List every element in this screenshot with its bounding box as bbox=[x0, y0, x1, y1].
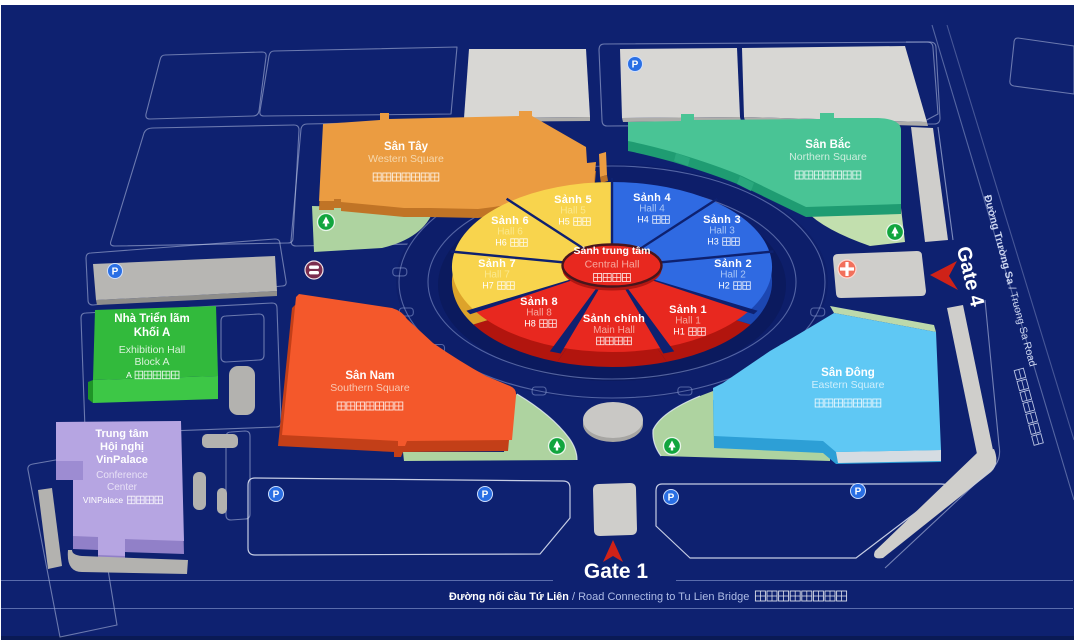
svg-text:VINPalace: VINPalace bbox=[83, 495, 123, 505]
svg-text:Sảnh trung tâm: Sảnh trung tâm bbox=[573, 245, 650, 257]
svg-text:H3: H3 bbox=[707, 237, 719, 247]
svg-text:Eastern Square: Eastern Square bbox=[812, 379, 885, 391]
svg-text:Sảnh 3: Sảnh 3 bbox=[703, 214, 741, 226]
svg-text:Nhà Triển lãm: Nhà Triển lãm bbox=[114, 313, 189, 325]
svg-text:Sảnh 6: Sảnh 6 bbox=[491, 215, 529, 227]
svg-text:P: P bbox=[273, 489, 280, 500]
svg-text:Hall 6: Hall 6 bbox=[497, 227, 523, 238]
svg-text:Hall 3: Hall 3 bbox=[709, 226, 735, 237]
svg-text:P: P bbox=[632, 59, 639, 70]
svg-text:Sảnh 7: Sảnh 7 bbox=[478, 258, 516, 270]
svg-text:Block A: Block A bbox=[134, 356, 169, 368]
svg-text:Sân Đông: Sân Đông bbox=[821, 367, 875, 379]
svg-text:H6: H6 bbox=[495, 238, 507, 248]
svg-text:H2: H2 bbox=[718, 281, 730, 291]
svg-text:Trung tâm: Trung tâm bbox=[95, 428, 148, 440]
svg-text:/ Road Connecting to Tu Lien B: / Road Connecting to Tu Lien Bridge bbox=[572, 591, 749, 603]
svg-text:Western Square: Western Square bbox=[368, 153, 444, 165]
svg-text:Sân Tây: Sân Tây bbox=[384, 141, 429, 153]
svg-text:Northern Square: Northern Square bbox=[789, 151, 867, 163]
svg-text:H7: H7 bbox=[482, 281, 494, 291]
svg-text:A: A bbox=[126, 370, 132, 380]
svg-text:Sân Bắc: Sân Bắc bbox=[805, 138, 851, 151]
svg-text:Hall 2: Hall 2 bbox=[720, 270, 746, 281]
svg-text:P: P bbox=[112, 266, 119, 277]
svg-text:P: P bbox=[668, 492, 675, 503]
svg-text:Sảnh 1: Sảnh 1 bbox=[669, 304, 707, 316]
svg-text:P: P bbox=[482, 489, 489, 500]
svg-text:Sảnh 8: Sảnh 8 bbox=[520, 296, 558, 308]
svg-text:Sảnh chính: Sảnh chính bbox=[583, 313, 645, 325]
svg-text:H1: H1 bbox=[673, 327, 685, 337]
svg-text:Hall 8: Hall 8 bbox=[526, 308, 552, 319]
svg-text:P: P bbox=[855, 486, 862, 497]
svg-text:Hall 5: Hall 5 bbox=[560, 206, 586, 217]
svg-text:Hall 4: Hall 4 bbox=[639, 204, 665, 215]
svg-text:Exhibition Hall: Exhibition Hall bbox=[119, 344, 186, 356]
svg-text:Main Hall: Main Hall bbox=[593, 325, 635, 336]
svg-text:Southern Square: Southern Square bbox=[330, 382, 410, 394]
svg-text:Sảnh 4: Sảnh 4 bbox=[633, 192, 671, 204]
svg-text:Gate 1: Gate 1 bbox=[584, 560, 649, 583]
svg-text:Sân Nam: Sân Nam bbox=[345, 370, 394, 382]
svg-text:Sảnh 2: Sảnh 2 bbox=[714, 258, 752, 270]
svg-text:VinPalace: VinPalace bbox=[96, 454, 148, 466]
svg-text:Khối A: Khối A bbox=[134, 327, 171, 339]
svg-text:Central Hall: Central Hall bbox=[585, 259, 640, 271]
svg-text:Đường nối cầu Tứ Liên: Đường nối cầu Tứ Liên bbox=[449, 591, 569, 603]
svg-text:Hội nghị: Hội nghị bbox=[100, 441, 144, 453]
svg-text:H5: H5 bbox=[558, 217, 570, 227]
svg-text:Conference: Conference bbox=[96, 470, 148, 481]
svg-text:Center: Center bbox=[107, 482, 138, 493]
svg-text:H4: H4 bbox=[637, 215, 649, 225]
svg-text:Sảnh 5: Sảnh 5 bbox=[554, 194, 592, 206]
svg-text:Hall 1: Hall 1 bbox=[675, 316, 701, 327]
svg-text:H8: H8 bbox=[524, 319, 536, 329]
svg-text:Hall 7: Hall 7 bbox=[484, 270, 510, 281]
